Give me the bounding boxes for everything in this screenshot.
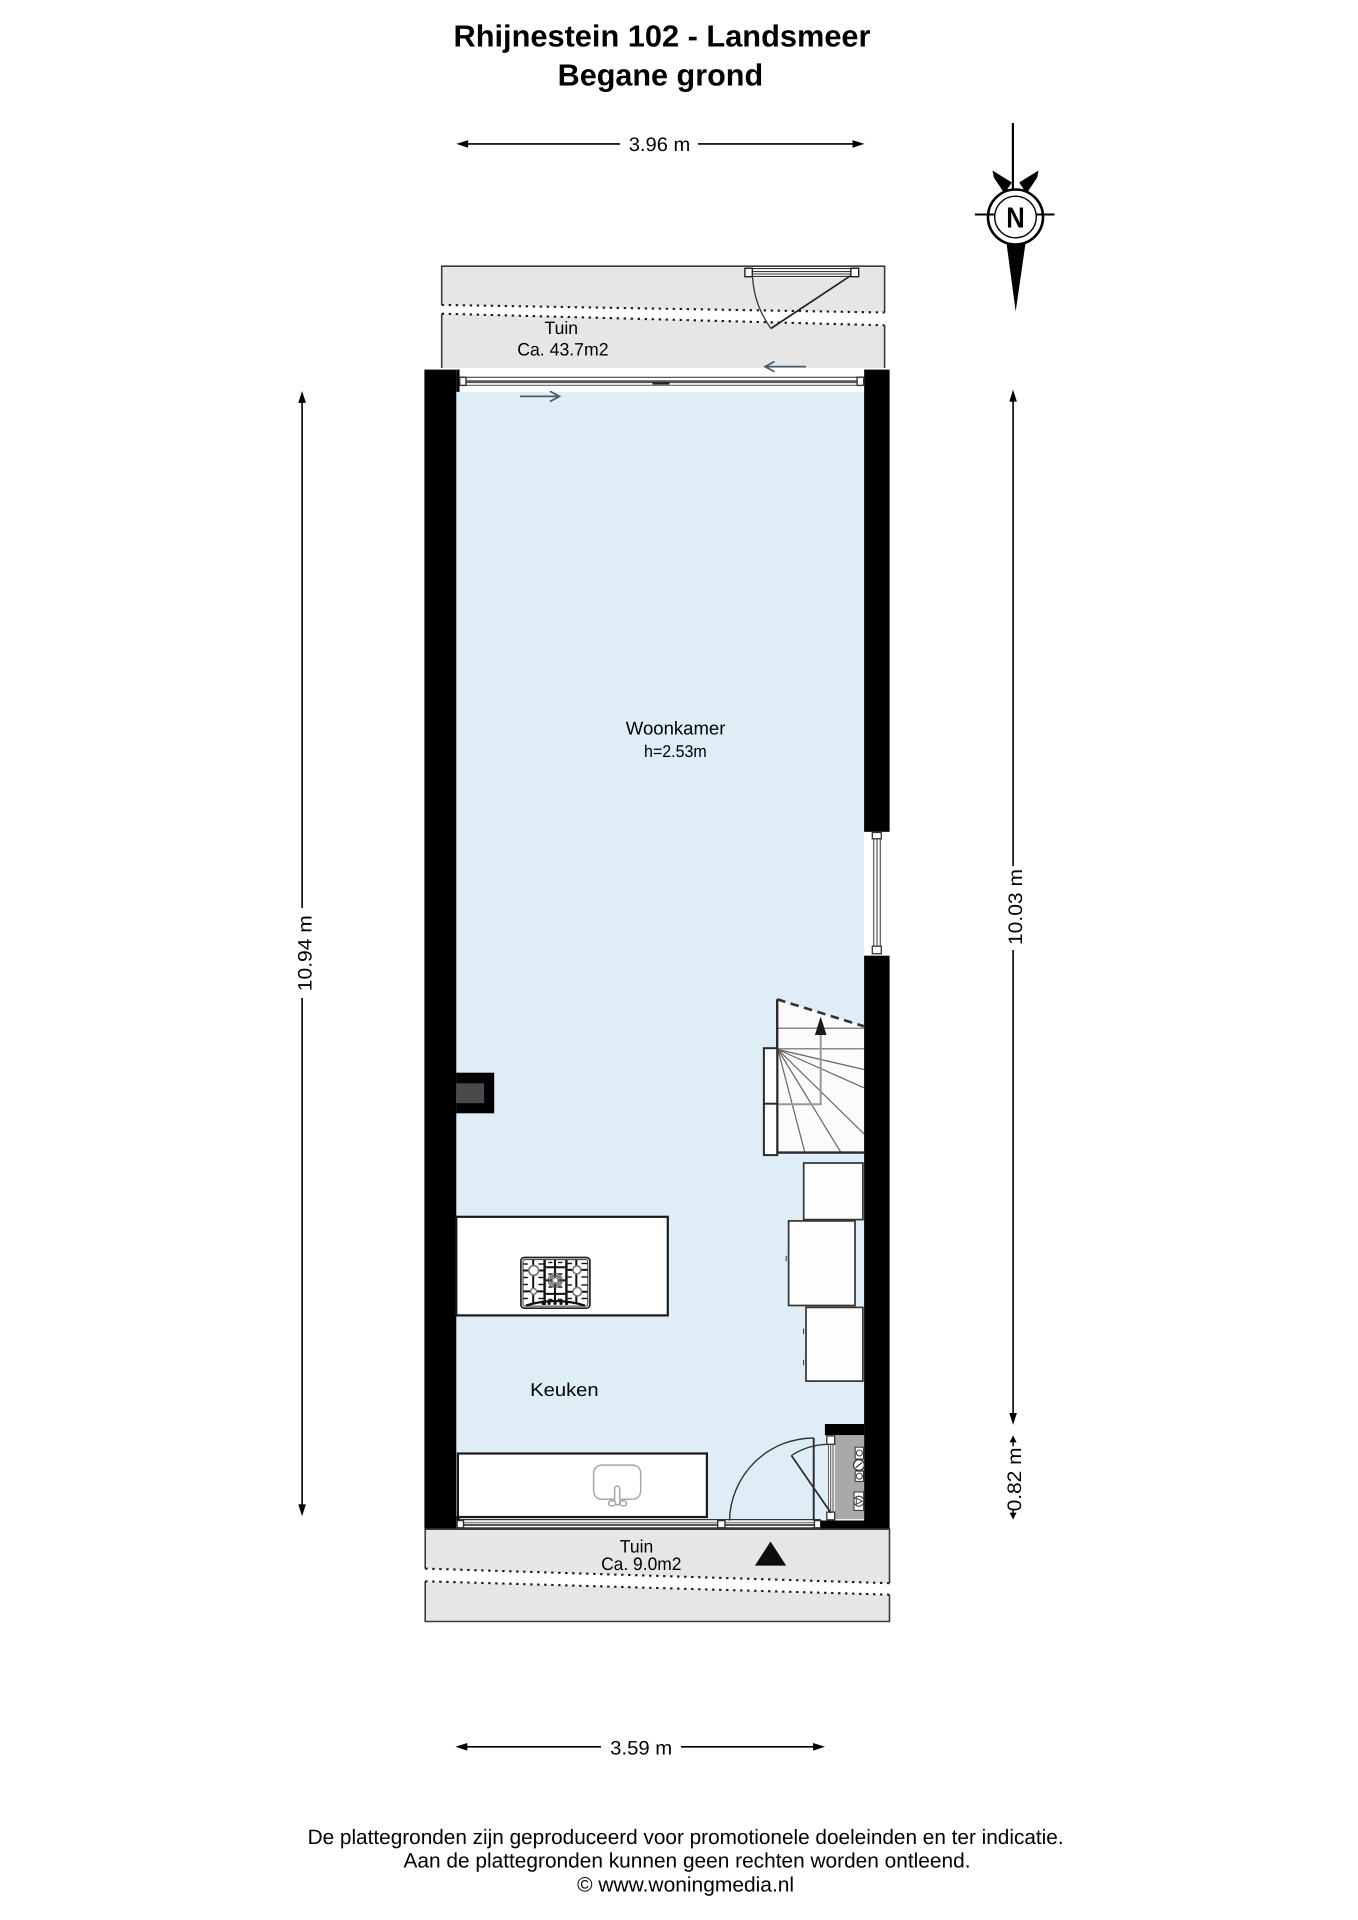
svg-text:Aan de plattegronden kunnen ge: Aan de plattegronden kunnen geen rechten… xyxy=(404,1850,971,1873)
svg-text:10.94 m: 10.94 m xyxy=(295,915,317,991)
svg-text:3.96 m: 3.96 m xyxy=(629,134,691,156)
svg-text:De plattegronden zijn geproduc: De plattegronden zijn geproduceerd voor … xyxy=(308,1826,1064,1849)
svg-text:h=2.53m: h=2.53m xyxy=(644,742,707,761)
svg-text:© www.woningmedia.nl: © www.woningmedia.nl xyxy=(577,1874,794,1897)
svg-text:Woonkamer: Woonkamer xyxy=(626,717,726,738)
svg-text:Begane grond: Begane grond xyxy=(558,59,764,93)
svg-text:Rhijnestein 102 - Landsmeer: Rhijnestein 102 - Landsmeer xyxy=(454,19,871,53)
svg-text:10.03 m: 10.03 m xyxy=(1005,869,1027,945)
svg-text:N: N xyxy=(1006,203,1025,235)
svg-text:Ca. 9.0m2: Ca. 9.0m2 xyxy=(601,1554,681,1574)
svg-text:Keuken: Keuken xyxy=(530,1379,599,1400)
svg-text:3.59 m: 3.59 m xyxy=(610,1738,672,1760)
svg-text:0.82 m: 0.82 m xyxy=(1004,1447,1026,1511)
svg-text:Tuin: Tuin xyxy=(545,318,579,338)
svg-text:Ca. 43.7m2: Ca. 43.7m2 xyxy=(517,339,608,359)
